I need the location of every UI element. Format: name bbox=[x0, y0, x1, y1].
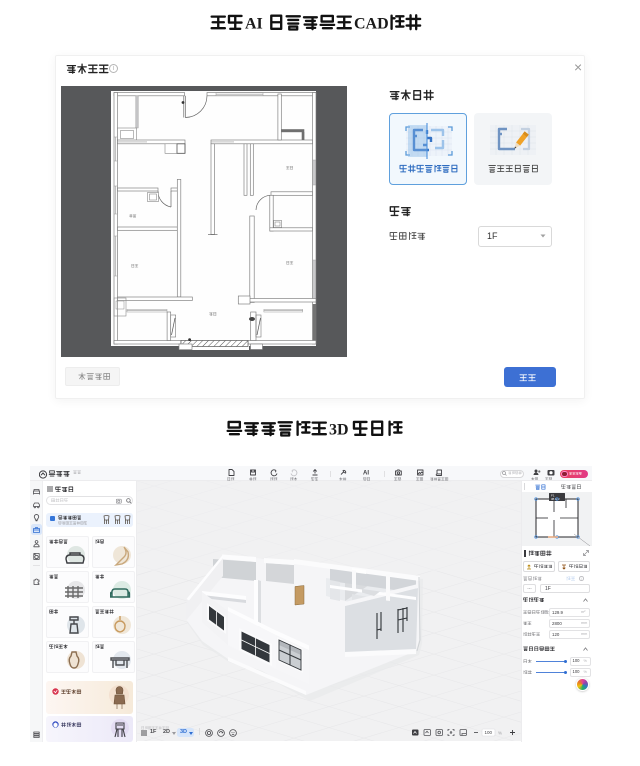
svg-text:%: % bbox=[498, 731, 502, 736]
svg-text:AI: AI bbox=[363, 471, 369, 477]
svg-text:100: 100 bbox=[485, 730, 493, 735]
svg-text:CAD: CAD bbox=[354, 16, 389, 33]
svg-text:3D: 3D bbox=[329, 422, 349, 439]
svg-text:AI: AI bbox=[245, 16, 263, 33]
